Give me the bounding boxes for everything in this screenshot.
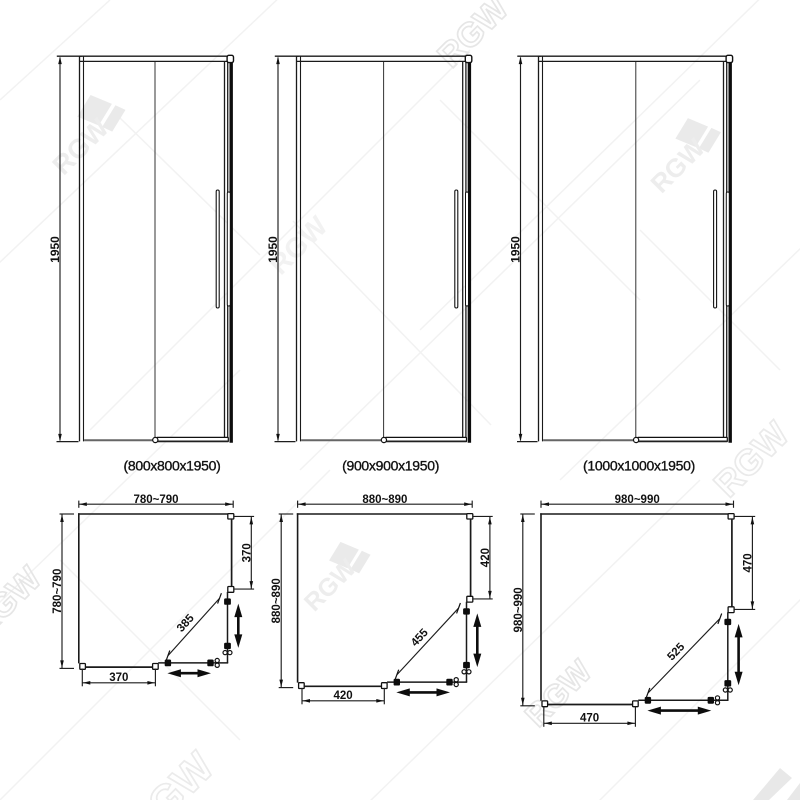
svg-text:880~890: 880~890 <box>362 494 407 506</box>
svg-text:(800x800x1950): (800x800x1950) <box>124 457 221 473</box>
svg-text:470: 470 <box>742 553 754 572</box>
svg-text:RGW: RGW <box>706 414 797 505</box>
svg-text:525: 525 <box>665 641 687 664</box>
svg-text:420: 420 <box>334 690 353 702</box>
svg-text:780~790: 780~790 <box>133 494 178 506</box>
svg-text:370: 370 <box>241 543 253 562</box>
svg-text:880~890: 880~890 <box>271 578 283 623</box>
svg-text:780~790: 780~790 <box>52 569 64 614</box>
svg-text:RGW: RGW <box>645 132 711 198</box>
svg-text:RGW: RGW <box>430 0 516 75</box>
svg-text:385: 385 <box>175 612 197 635</box>
svg-text:980~990: 980~990 <box>513 587 525 632</box>
svg-text:470: 470 <box>580 713 599 725</box>
svg-text:(1000x1000x1950): (1000x1000x1950) <box>583 457 695 473</box>
svg-text:RGW: RGW <box>47 112 115 180</box>
svg-text:1950: 1950 <box>48 236 62 263</box>
svg-text:RGW: RGW <box>117 743 223 800</box>
svg-text:RGW: RGW <box>299 554 362 617</box>
svg-text:RGW: RGW <box>0 559 50 645</box>
svg-text:455: 455 <box>409 626 431 649</box>
svg-text:420: 420 <box>480 548 492 567</box>
svg-text:1950: 1950 <box>509 236 523 263</box>
svg-text:370: 370 <box>109 672 128 684</box>
svg-text:980~990: 980~990 <box>615 494 660 506</box>
svg-text:1950: 1950 <box>266 236 280 263</box>
svg-text:(900x900x1950): (900x900x1950) <box>342 457 439 473</box>
